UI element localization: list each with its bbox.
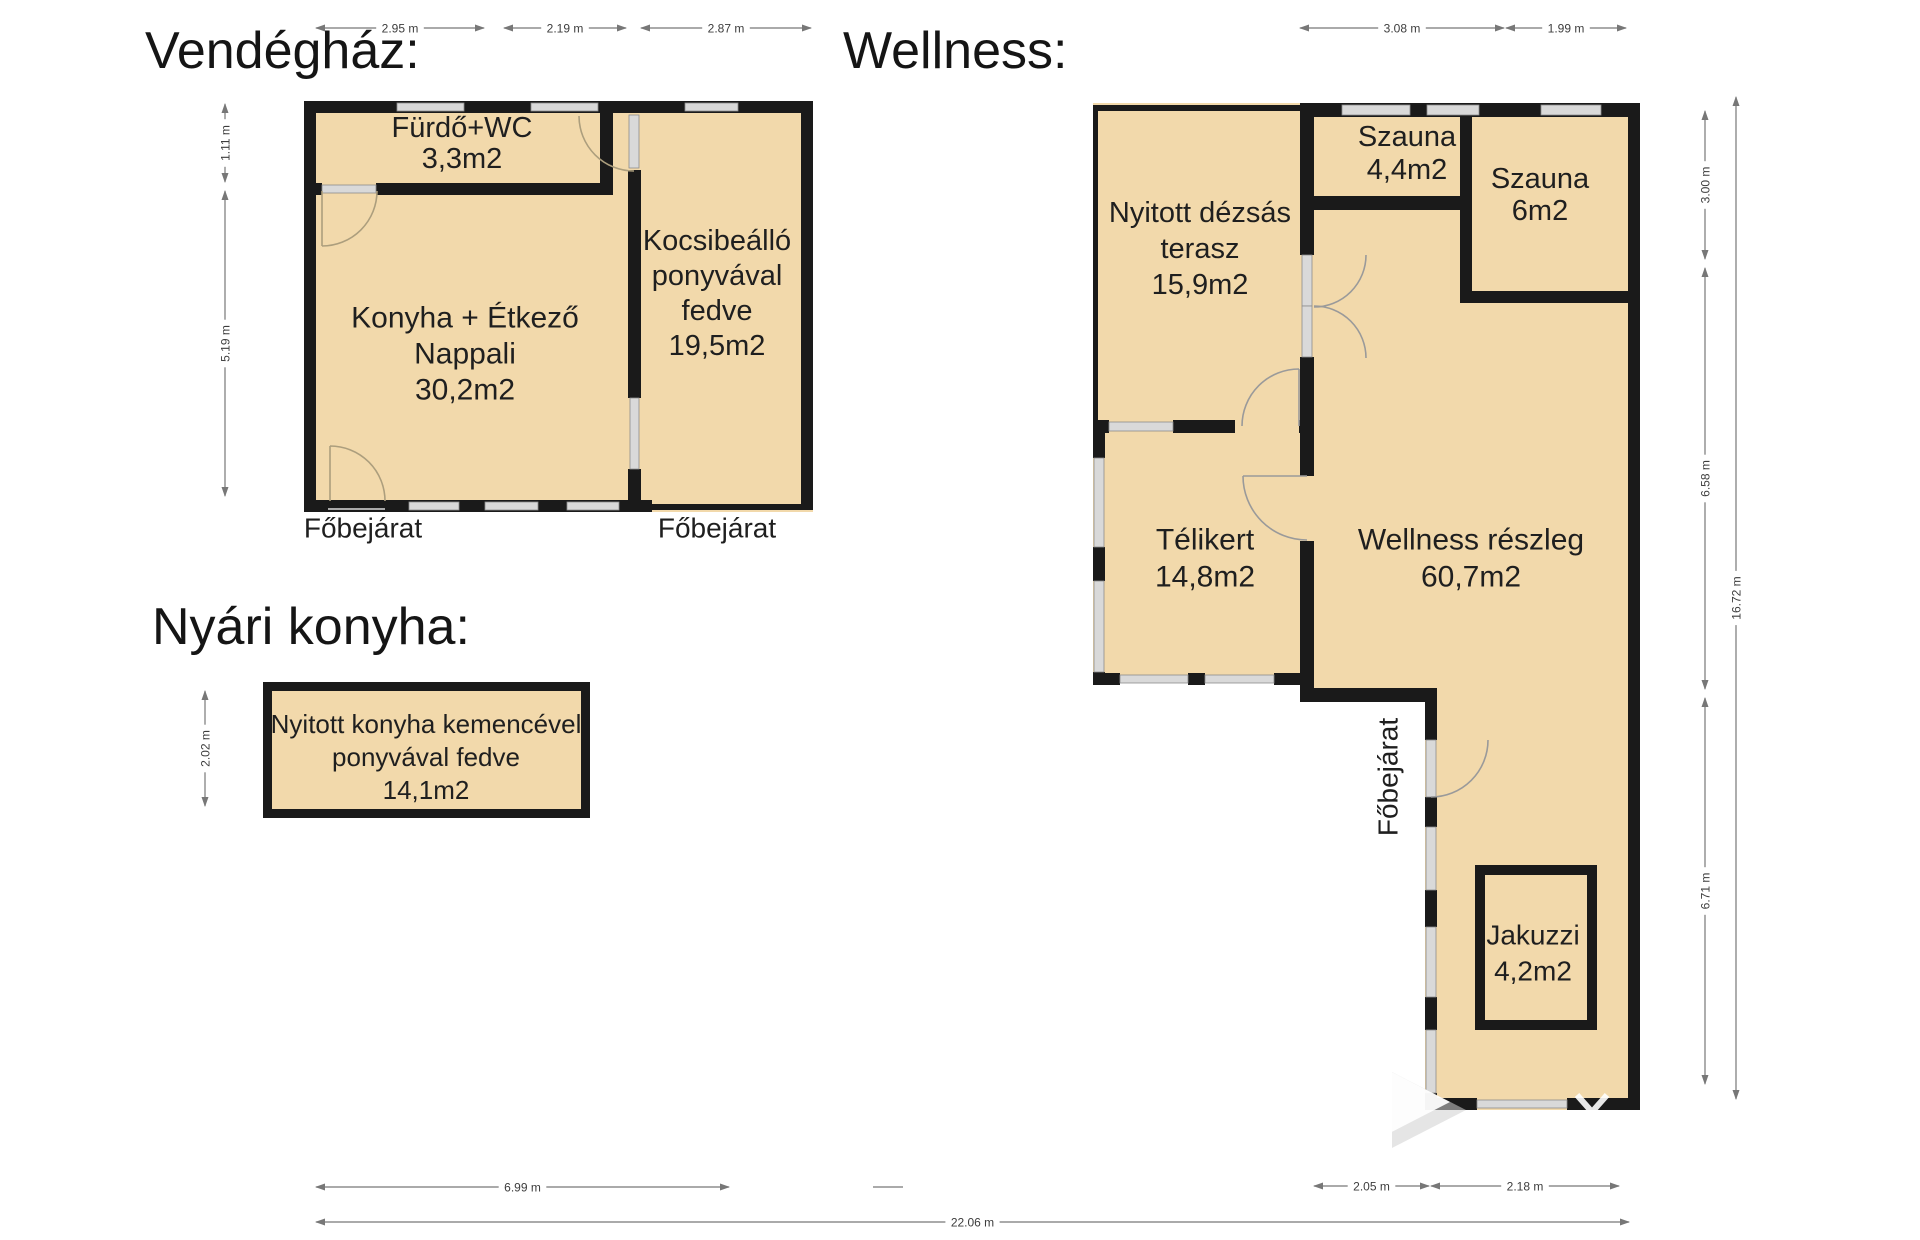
dim-arrow — [202, 690, 209, 700]
dim-arrow — [222, 173, 229, 183]
wl-lower-left-3 — [1425, 890, 1437, 927]
wl-szauna44-bottom — [1300, 196, 1472, 210]
room-label-jakuzzi: 4,2m2 — [1494, 956, 1572, 987]
room-label-nyitott-konyha: 14,1m2 — [383, 775, 470, 805]
room-label-nyitott-dezsas-terasz: 15,9m2 — [1152, 269, 1249, 301]
wl-telikert-left-window-1 — [1094, 458, 1104, 547]
room-label-nyitott-konyha: Nyitott konyha kemencével — [271, 709, 582, 739]
wl-terasz-bottom-3 — [1299, 420, 1314, 433]
dim-arrow — [1313, 1183, 1323, 1190]
room-label-wellness-reszleg: Wellness részleg — [1358, 524, 1584, 557]
dim-label-v-2: 2.02 m — [199, 730, 213, 767]
dim-label-v-6: 16.72 m — [1730, 576, 1744, 619]
dim-label-h-7: 2.18 m — [1507, 1180, 1544, 1194]
dim-arrow — [1733, 1090, 1740, 1100]
dim-arrow — [202, 797, 209, 807]
dim-label-h-6-group: 2.05 m — [1348, 1178, 1396, 1194]
room-label-konyha-etkezo: Konyha + Étkező — [351, 302, 579, 335]
dim-label-v-5-group: 6.71 m — [1697, 867, 1713, 915]
vh-interior-1 — [628, 170, 641, 398]
wl-telikert-right-1 — [1300, 433, 1314, 476]
wl-szauna6-bottom — [1460, 291, 1640, 303]
wl-top-thin — [1093, 105, 1303, 111]
dim-arrow — [315, 25, 325, 32]
dim-label-v-4-group: 6.58 m — [1697, 455, 1713, 503]
room-label-szauna-6: Szauna — [1491, 163, 1590, 195]
dim-label-h-5: 6.99 m — [504, 1181, 541, 1195]
wl-double-door-leaf-2 — [1302, 306, 1312, 357]
dim-label-v-0-group: 1.11 m — [217, 119, 233, 167]
dim-arrow — [1620, 1219, 1630, 1226]
room-label-telikert: 14,8m2 — [1155, 561, 1255, 594]
dim-arrow — [1702, 697, 1709, 707]
dim-arrow — [1702, 250, 1709, 260]
dim-label-v-0: 1.11 m — [219, 125, 233, 161]
dim-arrow — [1430, 1183, 1440, 1190]
wl-lower-left-4 — [1425, 997, 1437, 1030]
dim-label-h-6: 2.05 m — [1353, 1180, 1390, 1194]
dim-arrow — [222, 190, 229, 200]
dim-label-v-3: 3.00 m — [1699, 167, 1713, 204]
vh-left — [304, 101, 316, 512]
fobejarat-house-right: Főbejárat — [658, 513, 777, 544]
wl-step — [1300, 688, 1437, 702]
dim-label-h-7-group: 2.18 m — [1501, 1178, 1549, 1194]
dim-label-v-5: 6.71 m — [1699, 873, 1713, 910]
room-label-telikert: Télikert — [1156, 524, 1255, 557]
wl-telikert-bottom-1 — [1093, 673, 1120, 685]
wl-terasz-left-thin — [1093, 105, 1098, 422]
room-label-nyitott-dezsas-terasz: Nyitott dézsás — [1109, 197, 1291, 229]
dim-arrow — [503, 25, 513, 32]
room-label-furdo-wc: Fürdő+WC — [391, 112, 532, 144]
dim-label-h-8: 22.06 m — [951, 1216, 994, 1230]
dim-arrow — [720, 1184, 730, 1191]
dim-arrow — [640, 25, 650, 32]
dim-label-h-5-group: 6.99 m — [499, 1179, 547, 1195]
wl-lower-left-window-2 — [1426, 927, 1436, 997]
dim-label-h-3-group: 3.08 m — [1378, 20, 1426, 36]
room-label-kocsibeallo: Kocsibeálló — [643, 225, 791, 257]
fobejarat-house-left: Főbejárat — [304, 513, 423, 544]
room-label-nyitott-dezsas-terasz: terasz — [1161, 233, 1240, 265]
dim-arrow — [1495, 25, 1505, 32]
vh-interior-2 — [628, 469, 641, 512]
wl-szauna6-left — [1460, 103, 1472, 303]
dim-arrow — [315, 1219, 325, 1226]
wl-telikert-left-window-2 — [1094, 581, 1104, 672]
wl-lower-left-1 — [1425, 700, 1437, 740]
wl-lower-left-window-1 — [1426, 827, 1436, 890]
wl-double-door-leaf-1 — [1302, 255, 1312, 306]
fobejarat-wellness: Főbejárat — [1373, 718, 1404, 837]
dim-label-h-2: 2.87 m — [708, 22, 745, 36]
dim-arrow — [1420, 1183, 1430, 1190]
dim-label-v-4: 6.58 m — [1699, 460, 1713, 497]
room-label-kocsibeallo: ponyvával — [652, 260, 783, 292]
room-label-jakuzzi: Jakuzzi — [1486, 920, 1579, 951]
wl-right — [1628, 103, 1640, 1110]
vh-bottom-window-3 — [567, 502, 619, 510]
room-label-furdo-wc: 3,3m2 — [422, 143, 503, 175]
dim-label-v-3-group: 3.00 m — [1697, 161, 1713, 209]
floorplan-canvas: Vendégház: Wellness: Nyári konyha: Fürdő… — [0, 0, 1920, 1240]
wl-terasz-bottom-1 — [1093, 420, 1109, 433]
dim-arrow — [802, 25, 812, 32]
vh-furdo-right — [600, 101, 613, 195]
vh-interior-window — [630, 398, 639, 469]
dim-arrow — [222, 487, 229, 497]
room-label-szauna-6: 6m2 — [1512, 195, 1568, 227]
wl-top-window-1 — [1342, 105, 1410, 115]
vh-top-window-2 — [531, 103, 598, 111]
vh-furdo-bottom — [376, 183, 613, 195]
dim-arrow — [1610, 1183, 1620, 1190]
room-label-nyitott-konyha: ponyvával fedve — [332, 742, 520, 772]
dim-arrow — [1299, 25, 1309, 32]
dim-label-h-4: 1.99 m — [1548, 22, 1585, 36]
dim-label-h-0: 2.95 m — [382, 22, 419, 36]
room-label-konyha-etkezo: 30,2m2 — [415, 374, 515, 407]
vh-carport-top-window — [685, 103, 738, 111]
wl-top-window-2 — [1427, 105, 1479, 115]
dim-arrow — [315, 1184, 325, 1191]
dim-arrow — [1702, 680, 1709, 690]
room-label-szauna-44: Szauna — [1358, 121, 1457, 153]
vh-carport-bottom — [648, 504, 813, 510]
dim-arrow — [475, 25, 485, 32]
wl-lower-left-window-3 — [1426, 1030, 1436, 1093]
dim-arrow — [617, 25, 627, 32]
vh-furdo-bottom-left — [304, 183, 322, 195]
dim-arrow — [222, 103, 229, 113]
wl-telikert-bottom-window-2 — [1205, 675, 1274, 683]
wl-divider-mid — [1300, 357, 1314, 420]
vh-top-window-1 — [397, 103, 464, 111]
wl-telikert-bottom-2 — [1188, 673, 1205, 685]
dim-label-h-3: 3.08 m — [1384, 22, 1421, 36]
dim-arrow — [1505, 25, 1515, 32]
dim-label-v-6-group: 16.72 m — [1728, 571, 1744, 625]
wl-telikert-right-2 — [1300, 541, 1314, 700]
dim-label-v-1: 5.19 m — [219, 325, 233, 362]
wl-lower-left-2 — [1425, 797, 1437, 827]
vh-interior-door-leaf — [629, 115, 639, 168]
vh-bottom-window-1 — [409, 502, 459, 510]
dim-arrow — [1733, 96, 1740, 106]
dim-label-h-1-group: 2.19 m — [541, 20, 589, 36]
wl-divider-upper — [1300, 103, 1314, 255]
wl-top-window-3 — [1541, 105, 1601, 115]
dim-arrow — [1702, 1075, 1709, 1085]
vh-bottom-window-2 — [485, 502, 538, 510]
wl-telikert-left-2 — [1093, 547, 1105, 581]
wl-terasz-bottom-2 — [1173, 420, 1235, 433]
vh-furdo-door-leaf — [322, 185, 376, 193]
wl-telikert-bottom-window-1 — [1120, 675, 1188, 683]
room-label-wellness-reszleg: 60,7m2 — [1421, 561, 1521, 594]
dim-label-h-2-group: 2.87 m — [702, 20, 750, 36]
room-label-kocsibeallo: fedve — [682, 295, 753, 327]
room-label-kocsibeallo: 19,5m2 — [669, 330, 766, 362]
dim-arrow — [1702, 110, 1709, 120]
dim-label-h-4-group: 1.99 m — [1542, 20, 1590, 36]
room-label-konyha-etkezo: Nappali — [414, 338, 516, 371]
dim-label-h-1: 2.19 m — [547, 22, 584, 36]
dim-label-v-2-group: 2.02 m — [197, 725, 213, 773]
dim-label-h-8-group: 22.06 m — [945, 1214, 999, 1230]
vh-right — [801, 101, 813, 509]
dim-label-v-1-group: 5.19 m — [217, 320, 233, 368]
dim-label-h-0-group: 2.95 m — [376, 20, 424, 36]
dim-arrow — [1702, 267, 1709, 277]
room-label-szauna-44: 4,4m2 — [1367, 154, 1448, 186]
dim-arrow — [1617, 25, 1627, 32]
wl-terasz-bottom-window — [1109, 422, 1173, 431]
floorplan-svg: Fürdő+WC3,3m2Konyha + ÉtkezőNappali30,2m… — [0, 0, 1920, 1240]
wl-bottom-window — [1477, 1100, 1567, 1108]
wl-fobejarat-door-leaf — [1426, 740, 1436, 797]
